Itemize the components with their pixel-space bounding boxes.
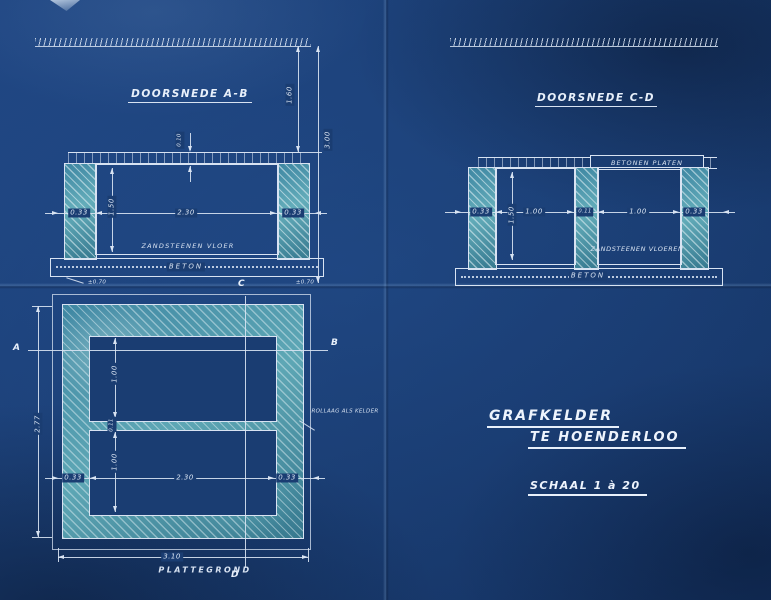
dim-wall-mid-cd: 0.11 (576, 208, 593, 217)
wall-right-cd (680, 167, 709, 270)
arrowhead (598, 210, 604, 214)
dim-inner-height-ab: 1.50 (108, 196, 117, 218)
arrowhead (316, 46, 320, 52)
wall-middle-cd (574, 167, 599, 270)
dim-slab-ab: 0.10 (176, 131, 185, 148)
extension-line (32, 537, 52, 538)
arrowhead (496, 210, 502, 214)
section-cd-title: DOORSNEDE C-D (535, 92, 657, 107)
arrowhead (302, 555, 308, 559)
dim-total-width-plan: 3.10 (161, 553, 183, 562)
floor-label-cd: ZANDSTEENEN VLOEREN (591, 245, 684, 253)
arrowhead (90, 476, 96, 480)
floor-label-ab: ZANDSTEENEN VLOER (142, 242, 235, 250)
arrowhead (567, 210, 573, 214)
arrowhead (188, 146, 192, 152)
arrowhead (113, 432, 117, 438)
dim-line (298, 46, 299, 152)
drawing-title-line2: TE HOENDERLOO (528, 430, 686, 449)
arrowhead (188, 166, 192, 172)
dim-line (58, 557, 308, 558)
paper-corner-fold (50, 0, 80, 11)
level-note-right-ab: ±0.70 (294, 279, 316, 288)
arrowhead (110, 168, 114, 174)
dim-wall-right-plan: 0.33 (276, 474, 298, 483)
dim-chamber-bottom-plan: 1.00 (111, 451, 120, 473)
dim-chamber-left-cd: 1.00 (523, 208, 545, 217)
plan-note: ROLLAAG ALS KELDER (310, 408, 381, 417)
dim-chamber-top-plan: 1.00 (111, 363, 120, 385)
foundation-label-ab: BETON (167, 263, 205, 272)
arrowhead (313, 476, 319, 480)
vertical-fold-crease (383, 0, 389, 600)
dim-total-height-plan: 2.77 (34, 413, 43, 435)
dim-chamber-right-cd: 1.00 (627, 208, 649, 217)
marker-a: A (13, 343, 20, 353)
section-ab-title: DOORSNEDE A-B (128, 88, 252, 103)
arrowhead (113, 506, 117, 512)
dim-inner-width-plan: 2.30 (174, 474, 196, 483)
dim-wall-left-cd: 0.33 (470, 208, 492, 217)
arrowhead (296, 46, 300, 52)
dim-inner-height-cd: 1.50 (508, 204, 517, 226)
arrowhead (36, 531, 40, 537)
dim-wall-right-cd: 0.33 (683, 208, 705, 217)
arrowhead (723, 210, 729, 214)
arrowhead (58, 555, 64, 559)
level-note-left-ab: ±0.70 (86, 279, 108, 288)
arrowhead (96, 211, 102, 215)
marker-b: B (331, 338, 338, 348)
ground-line-left (35, 38, 311, 47)
arrowhead (673, 210, 679, 214)
foundation-label-cd: BETON (569, 272, 607, 281)
ground-line-right (450, 38, 718, 47)
arrowhead (52, 476, 58, 480)
section-line-cd (245, 296, 246, 568)
dim-line (318, 46, 319, 283)
wall-left-cd (468, 167, 497, 270)
marker-c: C (238, 279, 245, 289)
blueprint-sheet: DOORSNEDE A-B ZANDSTEENEN VLOER BETON 0.… (0, 0, 771, 600)
arrowhead (510, 254, 514, 260)
section-line-ab (28, 350, 328, 351)
dim-inner-width-ab: 2.30 (175, 209, 197, 218)
plan-title: PLATTEGROND (158, 566, 251, 575)
dim-wall-left-plan: 0.33 (62, 474, 84, 483)
arrowhead (52, 211, 58, 215)
arrowhead (510, 172, 514, 178)
arrowhead (296, 146, 300, 152)
extension-line (308, 548, 309, 562)
drawing-title-line1: GRAFKELDER (487, 408, 619, 428)
arrowhead (113, 338, 117, 344)
arrowhead (268, 476, 274, 480)
dim-ground-to-top-ab: 1.60 (286, 84, 295, 106)
dim-total-depth-ab: 3.00 (324, 129, 333, 151)
dim-wall-right-ab: 0.33 (282, 209, 304, 218)
arrowhead (36, 306, 40, 312)
arrowhead (270, 211, 276, 215)
arrowhead (110, 246, 114, 252)
dim-wall-left-ab: 0.33 (68, 209, 90, 218)
drawing-scale: SCHAAL 1 à 20 (528, 479, 647, 496)
arrowhead (455, 210, 461, 214)
